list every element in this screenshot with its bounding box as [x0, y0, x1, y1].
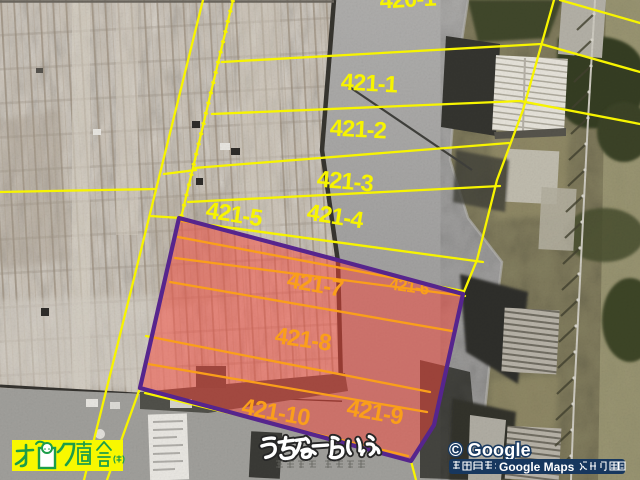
svg-text:© Google: © Google: [449, 440, 531, 460]
svg-text:421-3: 421-3: [316, 166, 375, 197]
svg-text:421-1: 421-1: [340, 69, 398, 98]
svg-text:421-2: 421-2: [329, 115, 387, 144]
svg-text:Google Maps: Google Maps: [499, 460, 575, 474]
